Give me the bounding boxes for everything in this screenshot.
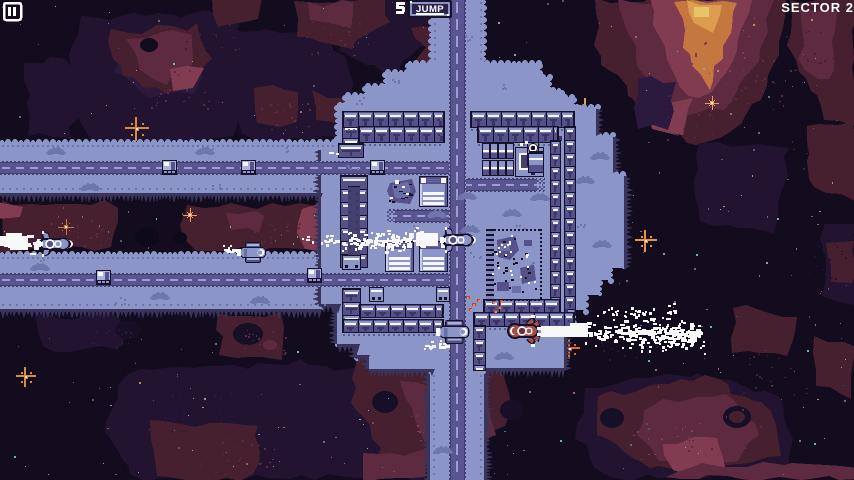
svg-text:SECTOR 2: SECTOR 2: [781, 0, 854, 15]
